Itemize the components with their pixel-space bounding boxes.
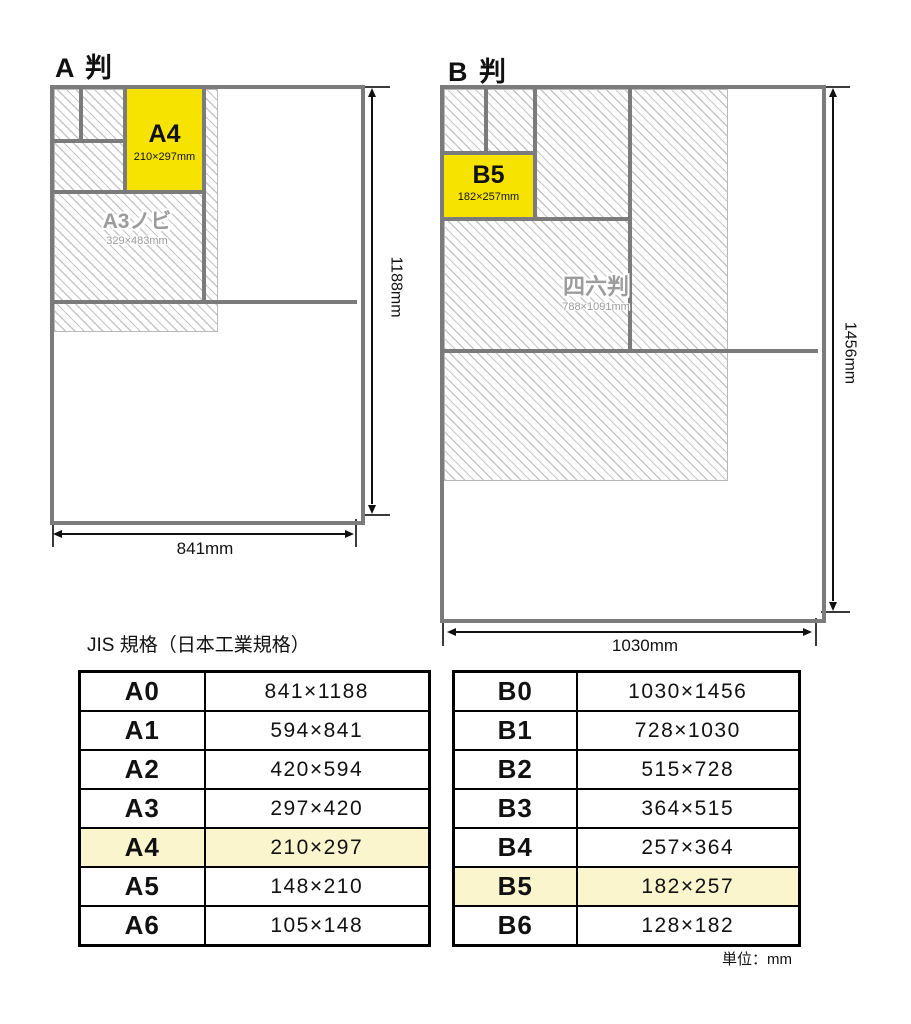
a-width-arrowhead-right <box>345 530 354 538</box>
table-row: A3297×420 <box>80 789 430 828</box>
table-row: A2420×594 <box>80 750 430 789</box>
b5-sheet-dims: 182×257mm <box>444 192 533 203</box>
a3-nobi-label: A3ノビ <box>62 211 212 232</box>
size-name-cell: A3 <box>80 789 205 828</box>
a-height-arrow-line <box>371 96 373 504</box>
table-row: A1594×841 <box>80 711 430 750</box>
a-series-size-table: A0841×1188 A1594×841 A2420×594 A3297×420… <box>78 670 431 947</box>
size-value-cell: 420×594 <box>205 750 430 789</box>
size-name-cell: A1 <box>80 711 205 750</box>
size-value-cell: 182×257 <box>577 867 800 906</box>
b-series-title: B 判 <box>448 50 508 89</box>
a-height-arrowhead-up <box>368 88 376 97</box>
table-row: B3364×515 <box>454 789 800 828</box>
size-name-cell: A0 <box>80 672 205 712</box>
size-name-cell: A4 <box>80 828 205 867</box>
size-value-cell: 728×1030 <box>577 711 800 750</box>
table-row: B4257×364 <box>454 828 800 867</box>
table-row: B6128×182 <box>454 906 800 946</box>
table-row-highlighted-b5: B5182×257 <box>454 867 800 906</box>
b-width-arrow-line <box>452 631 807 633</box>
size-name-cell: B3 <box>454 789 577 828</box>
unit-note: 単位：mm <box>722 948 792 969</box>
size-value-cell: 105×148 <box>205 906 430 946</box>
a-height-arrowhead-down <box>368 505 376 514</box>
b5-sheet-label: B5 <box>444 163 533 188</box>
a-width-arrowhead-left <box>53 530 62 538</box>
a4-sheet-label: A4 <box>127 122 202 147</box>
table-row-highlighted-a4: A4210×297 <box>80 828 430 867</box>
b-width-arrowhead-left <box>447 628 456 636</box>
b-width-dimension-label: 1030mm <box>545 637 745 654</box>
size-name-cell: B4 <box>454 828 577 867</box>
size-name-cell: B5 <box>454 867 577 906</box>
table-row: A0841×1188 <box>80 672 430 712</box>
size-name-cell: B2 <box>454 750 577 789</box>
size-value-cell: 594×841 <box>205 711 430 750</box>
a-height-tick-bottom <box>361 514 390 516</box>
table-row: A5148×210 <box>80 867 430 906</box>
table-row: B1728×1030 <box>454 711 800 750</box>
size-value-cell: 210×297 <box>205 828 430 867</box>
b-series-size-table: B01030×1456 B1728×1030 B2515×728 B3364×5… <box>452 670 801 947</box>
table-row: B01030×1456 <box>454 672 800 712</box>
b-height-arrowhead-up <box>829 88 837 97</box>
paper-size-infographic: A 判 A4 210×297mm A3ノビ 329×483mm 1188mm 8… <box>0 0 911 1024</box>
size-value-cell: 297×420 <box>205 789 430 828</box>
b-width-arrowhead-right <box>803 628 812 636</box>
size-value-cell: 1030×1456 <box>577 672 800 712</box>
size-value-cell: 257×364 <box>577 828 800 867</box>
a3-nobi-dims: 329×483mm <box>62 236 212 247</box>
size-value-cell: 364×515 <box>577 789 800 828</box>
table-row: A6105×148 <box>80 906 430 946</box>
table-row: B2515×728 <box>454 750 800 789</box>
b-height-dimension-label: 1456mm <box>840 311 858 396</box>
b-height-arrow-line <box>832 96 834 601</box>
a0-sheet-outline <box>50 85 365 525</box>
size-name-cell: A2 <box>80 750 205 789</box>
size-name-cell: A6 <box>80 906 205 946</box>
b-height-arrowhead-down <box>829 602 837 611</box>
a-height-dimension-label: 1188mm <box>386 245 404 330</box>
size-name-cell: B1 <box>454 711 577 750</box>
size-value-cell: 841×1188 <box>205 672 430 712</box>
a-width-arrow-line <box>58 533 350 535</box>
a-series-title: A 判 <box>55 46 114 85</box>
size-name-cell: A5 <box>80 867 205 906</box>
size-name-cell: B6 <box>454 906 577 946</box>
size-value-cell: 128×182 <box>577 906 800 946</box>
size-value-cell: 515×728 <box>577 750 800 789</box>
shiroku-ban-label: 四六判 <box>520 276 672 298</box>
jis-standard-caption: JIS 規格（日本工業規格） <box>87 630 310 657</box>
shiroku-ban-dims: 788×1091mm <box>520 302 672 313</box>
a4-sheet-dims: 210×297mm <box>127 152 202 163</box>
size-value-cell: 148×210 <box>205 867 430 906</box>
size-name-cell: B0 <box>454 672 577 712</box>
a-width-dimension-label: 841mm <box>105 540 305 557</box>
